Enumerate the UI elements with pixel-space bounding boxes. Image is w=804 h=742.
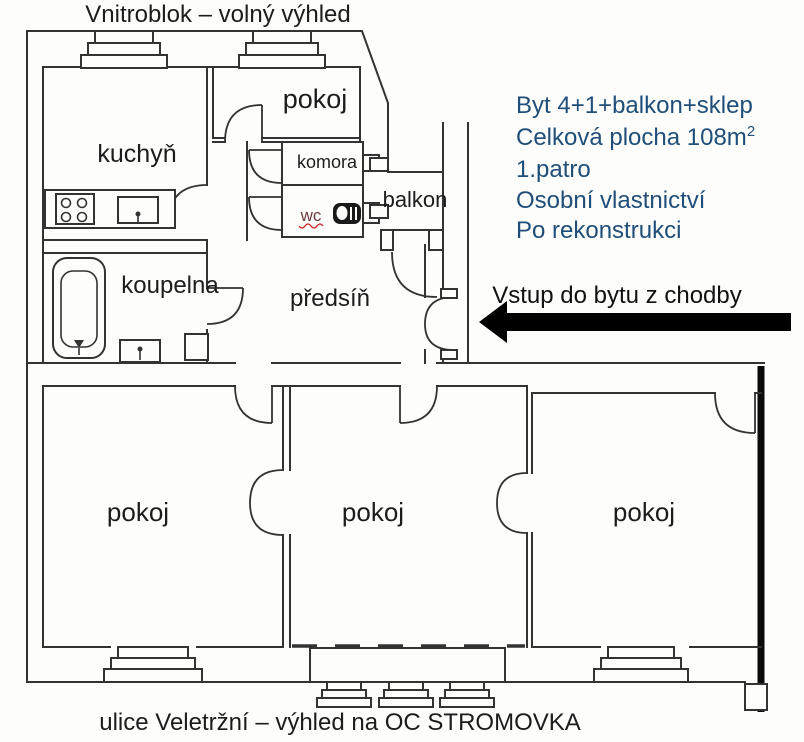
wc-door-arc — [249, 197, 282, 230]
double-door-right-arcs — [497, 473, 527, 533]
floorplan-page: Vnitroblok – volný výhled ulice Veletržn… — [0, 0, 804, 742]
room-middle-door-arc — [400, 386, 437, 423]
info-line-3: 1.patro — [516, 156, 591, 183]
room-label-room-bottom-right: pokoj — [613, 497, 675, 527]
room-label-bathroom: koupelna — [121, 272, 219, 299]
room-label-pantry: komora — [297, 152, 358, 172]
interior-walls-lower — [43, 386, 761, 707]
info-line-5: Po rekonstrukci — [516, 217, 681, 244]
washer-icon — [185, 334, 208, 360]
room-label-hallway: předsíň — [290, 285, 370, 312]
bathtub-icon — [53, 258, 105, 358]
window-bottom-left — [104, 647, 202, 682]
stove-icon — [56, 194, 94, 224]
window-bottom-right — [594, 647, 688, 682]
room-label-kitchen: kuchyň — [97, 140, 176, 168]
room-label-room-top: pokoj — [283, 84, 348, 114]
pantry-door-arc — [249, 150, 282, 183]
toilet-icon — [333, 203, 361, 224]
bottom-caption: ulice Veletržní – výhled na OC STROMOVKA — [99, 709, 581, 736]
listing-info-block: Byt 4+1+balkon+sklep Celková plocha 108m… — [516, 92, 755, 244]
window-top-2 — [239, 31, 325, 68]
kitchen-sink-icon — [118, 197, 158, 223]
room-left-door-arc — [235, 386, 272, 423]
room-right-door-arc — [715, 393, 755, 433]
top-room-door-arc — [225, 105, 262, 142]
info-line-4: Osobní vlastnictví — [516, 187, 706, 214]
balcony-door-arc — [392, 252, 437, 297]
entrance-door-arcs — [425, 297, 454, 350]
window-top-1 — [81, 31, 167, 68]
room-label-balcony: balkon — [383, 187, 448, 212]
top-caption: Vnitroblok – volný výhled — [85, 1, 350, 28]
bay-windows — [317, 682, 494, 707]
double-door-left-arcs — [250, 470, 283, 535]
kitchen-fixtures — [45, 190, 175, 228]
info-line-2: Celková plocha 108m2 — [516, 123, 755, 151]
room-label-wc: wc — [300, 206, 322, 225]
room-label-room-bottom-left: pokoj — [107, 497, 169, 527]
info-line-1: Byt 4+1+balkon+sklep — [516, 92, 753, 119]
room-label-room-bottom-middle: pokoj — [342, 497, 404, 527]
bathroom-sink-icon — [120, 340, 160, 362]
entrance-label: Vstup do bytu z chodby — [492, 282, 742, 309]
floorplan-drawing: Vnitroblok – volný výhled ulice Veletržn… — [0, 0, 804, 742]
